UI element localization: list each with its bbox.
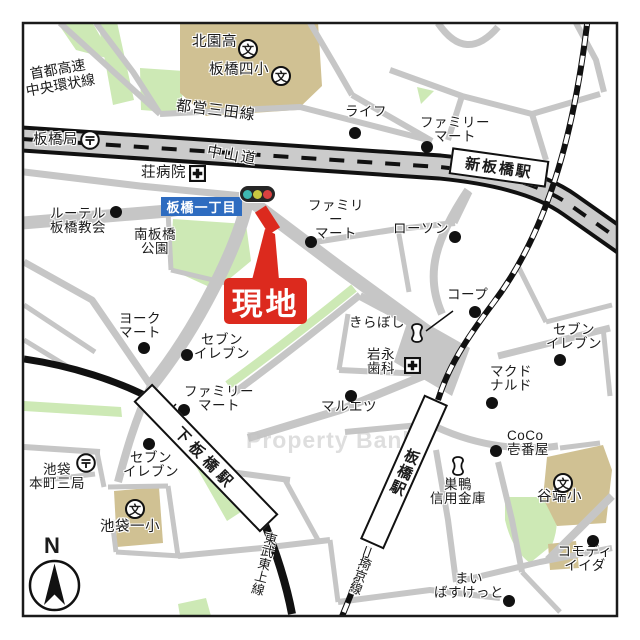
school-icon-char: 文	[238, 39, 258, 59]
label-coco-ichibanya: CoCo 壱番屋	[507, 429, 549, 457]
site-label: 現地	[224, 278, 307, 324]
poi-dot-mcdonalds	[486, 397, 498, 409]
label-minami-park: 南板橋 公園	[128, 228, 182, 256]
poi-dot-maruetsu	[345, 390, 357, 402]
label-seven-east: セブン イレブン	[546, 323, 602, 351]
label-itabashi-4sho: 板橋四小	[209, 63, 269, 78]
label-mcdonalds: マクド ナルド	[490, 365, 532, 393]
label-my-basket: まい ばすけっと	[433, 572, 505, 600]
compass-icon	[28, 559, 81, 617]
site-pointer	[252, 229, 279, 280]
label-kiraboshi: きらぼし	[349, 316, 405, 330]
label-ikebukuro-1sho: 池袋一小	[100, 520, 160, 535]
poi-dot-coco-ichibanya	[490, 445, 502, 457]
traffic-light-lamp-0	[243, 190, 252, 199]
poi-dot-seven-east	[554, 354, 566, 366]
school-icon-char: 文	[553, 473, 573, 493]
poi-dot-commodi-iida	[587, 535, 599, 547]
hospital-icon-sho-hospital	[189, 165, 206, 187]
poi-dot-my-basket	[503, 595, 515, 607]
label-seven-sw: セブン イレブン	[123, 451, 179, 479]
poi-dot-seven-sw	[143, 438, 155, 450]
label-iwanaga-dental: 岩永 歯科	[367, 348, 395, 376]
school-icon-ikebukuro1: 文	[125, 499, 145, 519]
map-graphics	[0, 0, 640, 640]
poi-dot-coop	[469, 306, 481, 318]
label-commodi-iida: コモディ イイダ	[554, 545, 616, 573]
label-seven-center: セブン イレブン	[194, 333, 250, 361]
bank-icon-kiraboshi	[408, 322, 426, 349]
label-maruetsu: マルエツ	[321, 400, 377, 414]
hospital-icon-iwanaga-dental	[404, 357, 421, 379]
poi-dot-familymart-ne	[421, 141, 433, 153]
poi-dot-lutheran-church	[110, 206, 122, 218]
school-icon-yabata: 文	[553, 473, 573, 493]
compass-north-label: N	[44, 533, 60, 559]
label-lawson: ローソン	[393, 222, 449, 236]
school-icon-char: 文	[125, 499, 145, 519]
post-icon-itabashi-post	[80, 130, 100, 155]
poi-dot-seven-center	[181, 349, 193, 361]
school-icon-itabashi4: 文	[271, 66, 291, 86]
label-itabashi-post: 板橋局	[33, 133, 78, 148]
school-icon-char: 文	[271, 66, 291, 86]
traffic-light-lamp-2	[263, 190, 272, 199]
label-life: ライフ	[345, 105, 387, 119]
school-icon-kitazono: 文	[238, 39, 258, 59]
label-coop: コープ	[447, 288, 488, 302]
poi-dot-life	[349, 127, 361, 139]
label-familymart-s: ファミリー マート	[183, 385, 255, 413]
poi-dot-york-mart	[138, 342, 150, 354]
traffic-light-icon	[240, 186, 275, 202]
label-lutheran-church: ルーテル 板橋教会	[50, 207, 106, 235]
map-canvas: Property Bank 都営三田線 首都高速 中央環状線 中山道 埼京線 東…	[0, 0, 640, 640]
traffic-light-lamp-1	[253, 190, 262, 199]
intersection-sign-itabashi-1chome: 板橋一丁目	[161, 197, 242, 216]
poi-dot-familymart-c	[305, 236, 317, 248]
label-sugamo-shinkin: 巣鴨 信用金庫	[426, 478, 490, 506]
label-kitazono-high: 北園高	[192, 35, 237, 50]
label-york-mart: ヨーク マート	[116, 312, 164, 340]
post-icon-ikebukuro-post	[76, 453, 96, 478]
watermark: Property Bank	[246, 427, 416, 454]
bank-icon-sugamo-shinkin	[449, 455, 467, 482]
label-familymart-c: ファミリー マート	[303, 199, 369, 242]
poi-dot-lawson	[449, 231, 461, 243]
label-sho-hospital: 荘病院	[141, 166, 186, 181]
